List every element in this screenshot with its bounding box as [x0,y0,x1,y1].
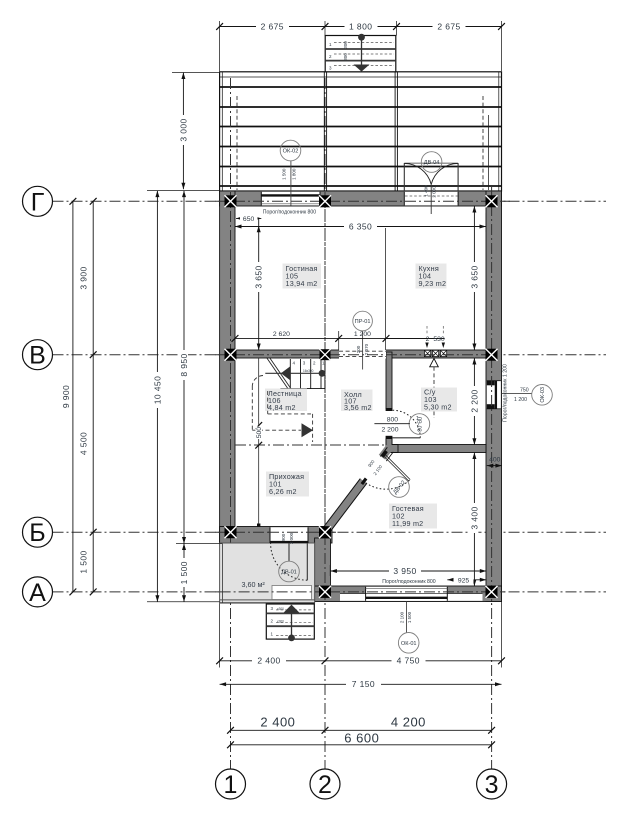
svg-text:9,23 m2: 9,23 m2 [419,279,447,288]
svg-text:4 200: 4 200 [391,714,426,729]
svg-text:3,56 m2: 3,56 m2 [344,403,372,412]
svg-text:500: 500 [256,427,263,439]
svg-text:3: 3 [485,771,499,799]
svg-text:3 950: 3 950 [393,566,416,576]
svg-text:9 900: 9 900 [61,385,71,408]
svg-text:Порог/подоконник 800: Порог/подоконник 800 [382,579,436,585]
svg-text:6,26 m2: 6,26 m2 [269,487,297,496]
svg-text:1: 1 [224,771,238,799]
svg-text:3 650: 3 650 [469,265,479,288]
svg-text:1 500: 1 500 [79,550,89,573]
svg-text:2 070: 2 070 [364,343,369,355]
svg-text:4,84 m2: 4,84 m2 [268,403,296,412]
svg-text:6 350: 6 350 [349,221,372,231]
svg-text:ДВ-04: ДВ-04 [424,160,440,166]
svg-text:х300: х300 [277,607,284,611]
svg-text:900: 900 [281,533,286,541]
svg-text:1 800: 1 800 [349,21,372,31]
svg-text:11,99 m2: 11,99 m2 [392,519,423,528]
svg-text:2 620: 2 620 [273,331,290,338]
svg-text:750: 750 [520,388,529,394]
svg-text:13,94 m2: 13,94 m2 [286,279,318,288]
svg-text:Порог/подоконник 1 200: Порог/подоконник 1 200 [502,364,508,422]
svg-text:3 900: 3 900 [79,266,89,289]
svg-text:х300: х300 [277,620,284,624]
svg-text:Г: Г [31,188,45,216]
svg-text:1 200: 1 200 [354,331,371,338]
svg-text:2: 2 [318,771,332,799]
svg-text:7 150: 7 150 [352,679,375,689]
svg-text:1 500: 1 500 [407,611,412,623]
svg-text:8 950: 8 950 [179,353,189,376]
svg-text:ОК-02: ОК-02 [283,149,299,155]
svg-text:2 400: 2 400 [257,655,280,665]
svg-text:4 500: 4 500 [79,432,89,455]
svg-text:1 500: 1 500 [179,561,189,584]
svg-text:2: 2 [426,336,430,343]
svg-text:400: 400 [489,457,501,464]
svg-text:ОК-01: ОК-01 [401,641,417,647]
svg-text:2 400: 2 400 [260,714,295,729]
svg-text:300: 300 [343,41,348,49]
svg-text:3 000: 3 000 [178,118,188,141]
svg-text:925: 925 [458,577,470,584]
svg-text:2 675: 2 675 [437,21,460,31]
svg-text:650: 650 [243,216,255,223]
svg-text:2 100: 2 100 [400,611,405,623]
svg-text:ДВ-01: ДВ-01 [281,570,297,576]
svg-text:3 400: 3 400 [469,506,479,529]
svg-text:3 650: 3 650 [254,265,264,288]
svg-text:В: В [29,342,46,370]
svg-text:ОК-03: ОК-03 [540,387,546,403]
svg-text:5,30 m2: 5,30 m2 [424,403,452,412]
svg-text:800: 800 [387,417,399,424]
svg-text:3,60 м²: 3,60 м² [242,580,266,589]
svg-text:ДВ-03: ДВ-03 [415,416,421,432]
svg-text:2 000: 2 000 [432,186,437,198]
svg-text:6 600: 6 600 [344,730,379,745]
svg-text:530: 530 [433,336,445,343]
svg-text:2 200: 2 200 [469,389,479,412]
svg-text:1 800: 1 800 [291,168,296,180]
svg-text:16х300: 16х300 [303,369,314,373]
svg-text:Порог/подоконник 800: Порог/подоконник 800 [263,210,317,216]
svg-text:1 400: 1 400 [424,185,429,197]
svg-text:2 200: 2 200 [381,427,398,434]
svg-text:300: 300 [343,53,348,61]
svg-text:ПР-01: ПР-01 [355,319,371,325]
svg-text:1 200: 1 200 [514,397,527,403]
svg-text:2 675: 2 675 [261,21,284,31]
svg-text:10 450: 10 450 [152,376,162,404]
svg-text:А: А [29,579,46,607]
svg-text:200: 200 [356,345,361,353]
svg-text:4 750: 4 750 [397,655,420,665]
svg-text:1 500: 1 500 [281,168,286,180]
svg-text:2 000: 2 000 [289,532,294,544]
svg-text:Б: Б [29,519,45,547]
